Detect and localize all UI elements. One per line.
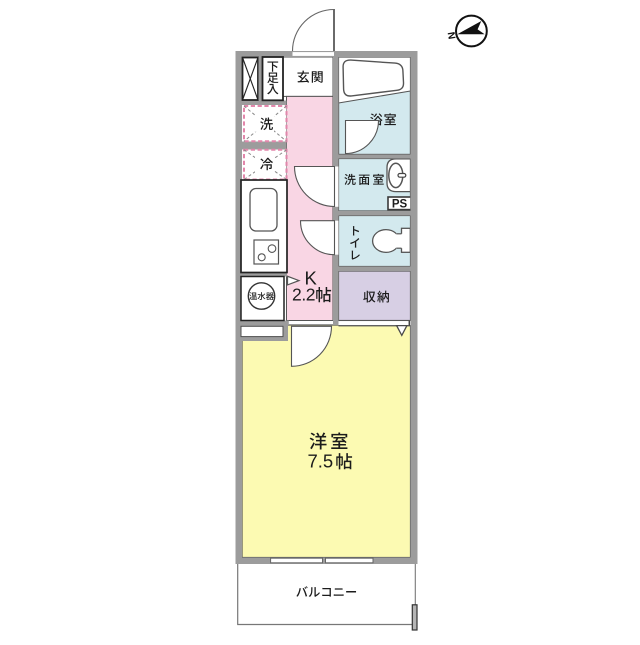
svg-text:2.2: 2.2 bbox=[292, 285, 315, 305]
svg-text:PS: PS bbox=[392, 198, 408, 210]
svg-text:7.5: 7.5 bbox=[308, 451, 334, 472]
